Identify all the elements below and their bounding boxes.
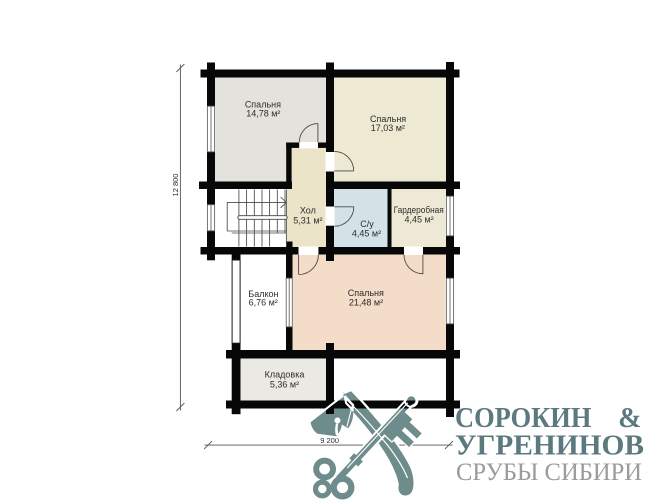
- svg-text:Спальня: Спальня: [348, 288, 384, 298]
- svg-text:СОРОКИН: СОРОКИН: [455, 403, 592, 434]
- svg-text:4,45 м²: 4,45 м²: [404, 214, 433, 224]
- svg-text:12 800: 12 800: [171, 174, 180, 197]
- svg-text:&: &: [618, 403, 641, 434]
- svg-text:5,31 м²: 5,31 м²: [293, 215, 322, 225]
- svg-text:17,03 м²: 17,03 м²: [371, 123, 405, 133]
- svg-text:4,45 м²: 4,45 м²: [352, 228, 381, 238]
- svg-text:14,78 м²: 14,78 м²: [246, 109, 280, 119]
- svg-text:Кладовка: Кладовка: [265, 370, 305, 380]
- svg-text:6,76 м²: 6,76 м²: [249, 298, 278, 308]
- svg-text:Хол: Хол: [300, 206, 316, 216]
- svg-text:21,48 м²: 21,48 м²: [349, 298, 383, 308]
- svg-text:СРУБЫ СИБИРИ: СРУБЫ СИБИРИ: [456, 457, 642, 486]
- svg-text:5,36 м²: 5,36 м²: [270, 380, 299, 390]
